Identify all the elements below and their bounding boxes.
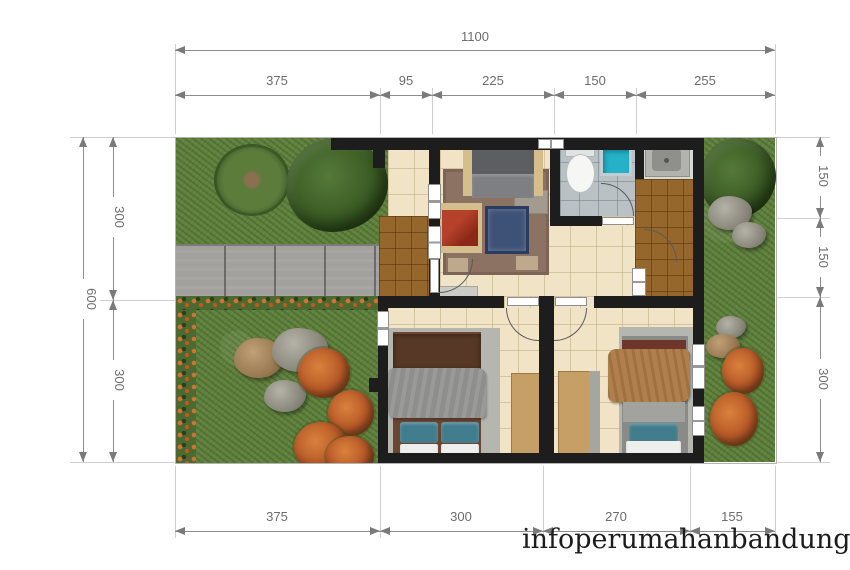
dim-label: 375 xyxy=(257,73,297,89)
master-headboard xyxy=(393,334,481,370)
wall-bath-left xyxy=(550,138,560,226)
dim-line-top xyxy=(636,95,775,96)
desk xyxy=(558,371,591,456)
single-mattress xyxy=(623,402,685,422)
dim-label: 150 xyxy=(815,237,831,277)
flowering-shrub xyxy=(722,348,764,394)
wall-middle-left xyxy=(378,296,504,308)
extension-line xyxy=(175,44,176,134)
dim-label: 270 xyxy=(596,509,636,525)
sofa-armrest xyxy=(534,148,543,196)
window-living-2 xyxy=(428,226,441,259)
dim-label: 375 xyxy=(257,509,297,525)
extension-line xyxy=(775,44,776,134)
sink-drain xyxy=(664,158,669,163)
dim-label: 300 xyxy=(815,359,831,399)
watermark-text: infoperumahanbandung.com xyxy=(522,524,850,555)
dim-line-top xyxy=(432,95,554,96)
shower-basin xyxy=(600,146,632,176)
single-blanket xyxy=(608,349,690,402)
dim-line-top-total xyxy=(175,50,775,51)
wall-center xyxy=(539,296,554,463)
window-living-1 xyxy=(428,184,441,219)
pillow xyxy=(441,422,479,443)
flower-border-side xyxy=(176,310,196,463)
dim-label: 300 xyxy=(111,197,127,237)
carport-driveway xyxy=(176,244,379,298)
window-top xyxy=(538,139,564,149)
round-bush xyxy=(214,144,290,216)
floor-plan xyxy=(175,137,777,464)
terrace-floor xyxy=(379,216,429,296)
rug-tab xyxy=(516,256,538,270)
bedroom2-door-leaf xyxy=(555,297,587,306)
wall-top xyxy=(331,138,704,150)
sofa-back xyxy=(472,146,534,174)
flowering-shrub xyxy=(710,392,758,446)
dim-label: 300 xyxy=(111,360,127,400)
floor-plan-canvas: 1100 375 95 225 150 255 600 300 300 150 … xyxy=(0,0,850,570)
coffee-table xyxy=(485,206,529,254)
dim-label: 300 xyxy=(441,509,481,525)
wall-return xyxy=(373,150,385,168)
toilet-bowl xyxy=(566,154,595,193)
master-door-leaf xyxy=(507,297,539,306)
desk-shadow xyxy=(589,371,600,457)
front-door-leaf xyxy=(430,259,439,293)
dim-line-top xyxy=(175,95,380,96)
window-bedroom2-1 xyxy=(692,344,705,389)
extension-line xyxy=(777,462,830,463)
sofa-seat xyxy=(472,174,534,198)
window-master xyxy=(377,311,389,346)
dim-label: 155 xyxy=(712,509,752,525)
dim-line-bottom xyxy=(380,531,543,532)
dim-label: 255 xyxy=(685,73,725,89)
pillow xyxy=(400,422,438,443)
dim-line-bottom xyxy=(175,531,380,532)
dim-label: 150 xyxy=(575,73,615,89)
wardrobe xyxy=(511,373,541,460)
dim-label: 95 xyxy=(386,73,426,89)
wall-bath-kitchen xyxy=(635,138,644,179)
sofa-armrest xyxy=(463,148,472,196)
master-blanket xyxy=(388,368,486,418)
wall-pillar xyxy=(369,378,378,392)
extension-line xyxy=(70,462,175,463)
window-kitchen xyxy=(632,268,646,296)
dim-label-total-height: 600 xyxy=(83,279,99,319)
wall-bottom xyxy=(378,453,704,463)
dim-label: 225 xyxy=(473,73,513,89)
dim-label-total-width: 1100 xyxy=(455,29,495,45)
bathroom-door-leaf xyxy=(602,217,634,225)
dim-line-top xyxy=(380,95,432,96)
window-bedroom2-2 xyxy=(692,406,705,436)
flower-border xyxy=(176,296,379,310)
pillow xyxy=(629,423,678,442)
wall-middle-right xyxy=(594,296,704,308)
wall-bath-bottom xyxy=(550,216,602,226)
armchair-cushion xyxy=(442,210,478,246)
dim-label: 150 xyxy=(815,156,831,196)
dim-line-top xyxy=(554,95,636,96)
